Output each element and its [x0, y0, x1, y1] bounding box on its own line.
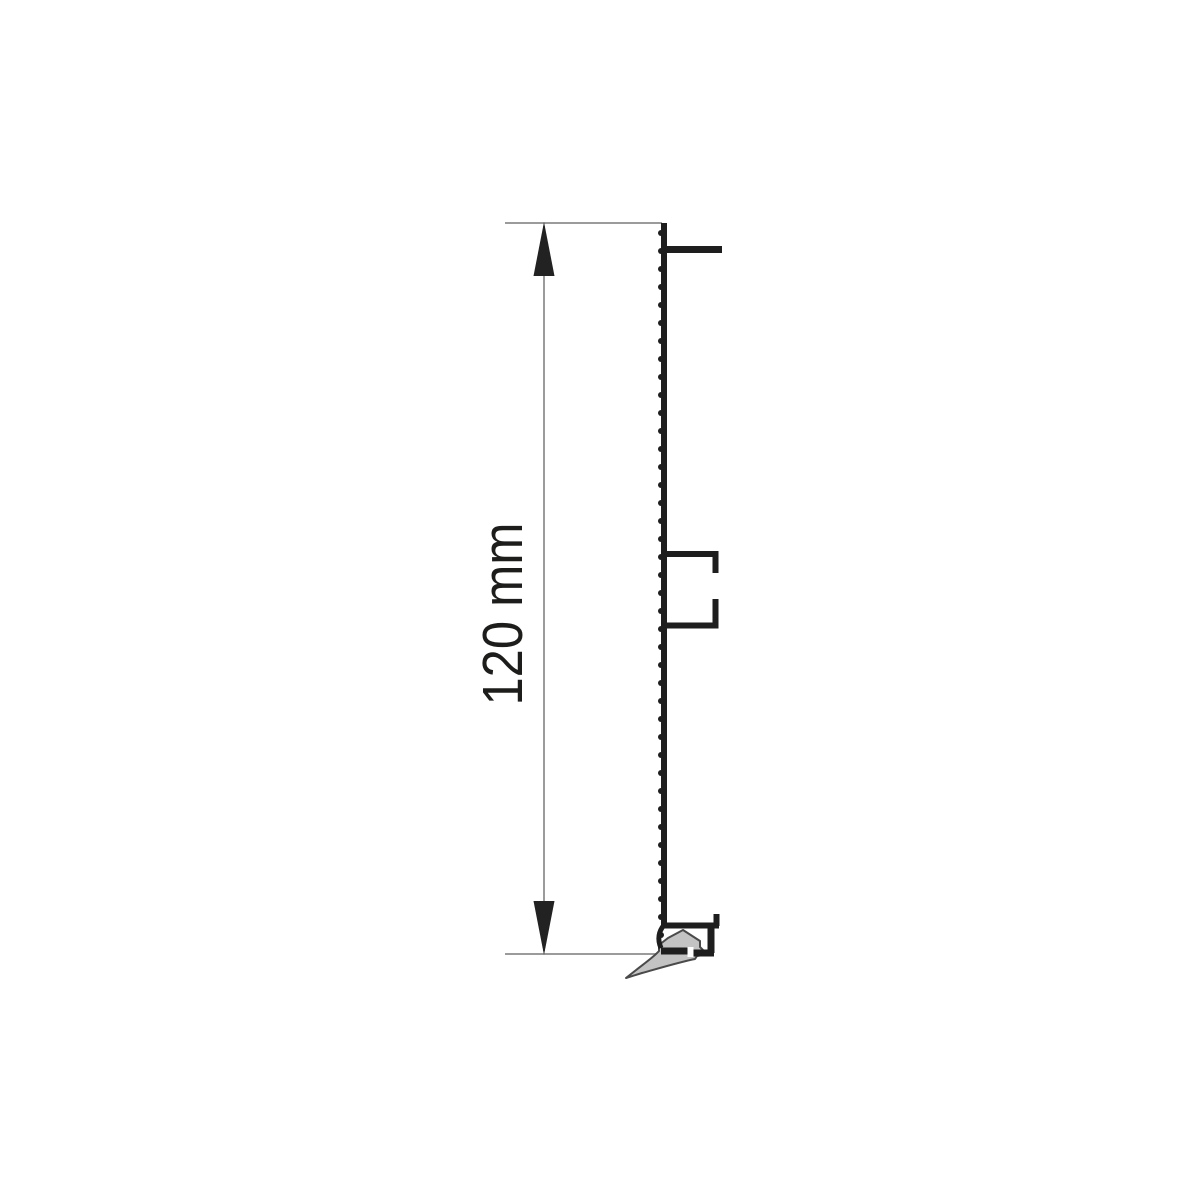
serration-tooth — [658, 374, 664, 380]
serration-tooth — [658, 626, 664, 632]
dimension-group: 120 mm — [471, 222, 662, 955]
technical-drawing-canvas: 120 mm — [0, 0, 1200, 1200]
serration-tooth — [658, 824, 664, 830]
serration-tooth — [658, 356, 664, 362]
serration-tooth — [658, 896, 664, 902]
serration-tooth — [658, 500, 664, 506]
serration-tooth — [658, 302, 664, 308]
serration-tooth — [658, 284, 664, 290]
serration-tooth — [658, 554, 664, 560]
serration-tooth — [658, 698, 664, 704]
gasket-notch — [688, 947, 694, 957]
serration-tooth — [658, 770, 664, 776]
profile-dimension-diagram: 120 mm — [0, 0, 1200, 1200]
serration-tooth — [658, 572, 664, 578]
serration-tooth — [658, 680, 664, 686]
serration-tooth — [658, 644, 664, 650]
dimension-label: 120 mm — [471, 523, 535, 706]
serration-tooth — [658, 806, 664, 812]
serration-tooth — [658, 734, 664, 740]
serration-tooth — [658, 752, 664, 758]
serration-tooth — [658, 842, 664, 848]
serration-tooth — [658, 536, 664, 542]
serration-tooth — [658, 914, 664, 920]
serration-tooth — [658, 428, 664, 434]
serration-tooth — [658, 932, 664, 938]
middle-clip-channel — [664, 554, 716, 626]
serration-tooth — [658, 446, 664, 452]
serration-tooth — [658, 464, 664, 470]
dimension-arrowhead-bottom-icon — [534, 901, 555, 955]
serration-tooth — [658, 248, 664, 254]
serration-tooth — [658, 482, 664, 488]
serration-tooth — [658, 788, 664, 794]
serration-tooth — [658, 518, 664, 524]
serration-tooth — [658, 608, 664, 614]
serration-tooth — [658, 878, 664, 884]
serration-tooth — [658, 392, 664, 398]
serration-tooth — [658, 860, 664, 866]
serration-tooth — [658, 230, 664, 236]
serration-tooth — [658, 320, 664, 326]
serration-tooth — [658, 590, 664, 596]
serration-tooth — [658, 716, 664, 722]
serration-tooth — [658, 338, 664, 344]
serration-tooth — [658, 662, 664, 668]
bottom-foot-bar — [661, 948, 688, 955]
profile-group — [626, 223, 722, 978]
dimension-arrowhead-top-icon — [534, 222, 555, 276]
serration-tooth — [658, 410, 664, 416]
serration-tooth — [658, 266, 664, 272]
